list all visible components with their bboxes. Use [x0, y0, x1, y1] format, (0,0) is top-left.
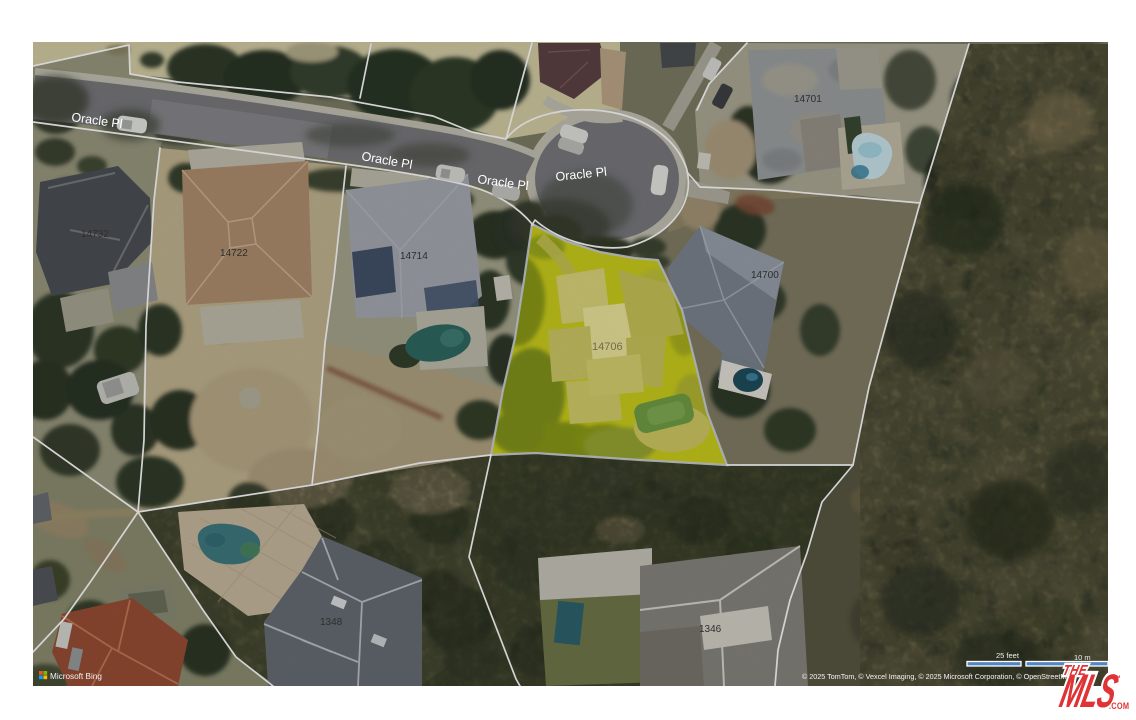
svg-text:.COM: .COM [1109, 700, 1129, 711]
svg-text:14714: 14714 [400, 251, 428, 262]
svg-text:1346: 1346 [699, 624, 722, 635]
svg-text:™: ™ [1113, 674, 1121, 683]
svg-text:Microsoft Bing: Microsoft Bing [50, 672, 102, 681]
svg-text:14732: 14732 [81, 229, 109, 240]
svg-text:1348: 1348 [320, 617, 343, 628]
svg-text:14700: 14700 [751, 270, 779, 281]
svg-text:14706: 14706 [592, 341, 623, 353]
svg-text:14722: 14722 [220, 248, 248, 259]
svg-text:14701: 14701 [794, 94, 822, 105]
svg-text:25 feet: 25 feet [996, 651, 1020, 660]
svg-text:10 m: 10 m [1074, 653, 1091, 662]
svg-text:© 2025 TomTom, © Vexcel Imagin: © 2025 TomTom, © Vexcel Imaging, © 2025 … [802, 672, 1074, 681]
